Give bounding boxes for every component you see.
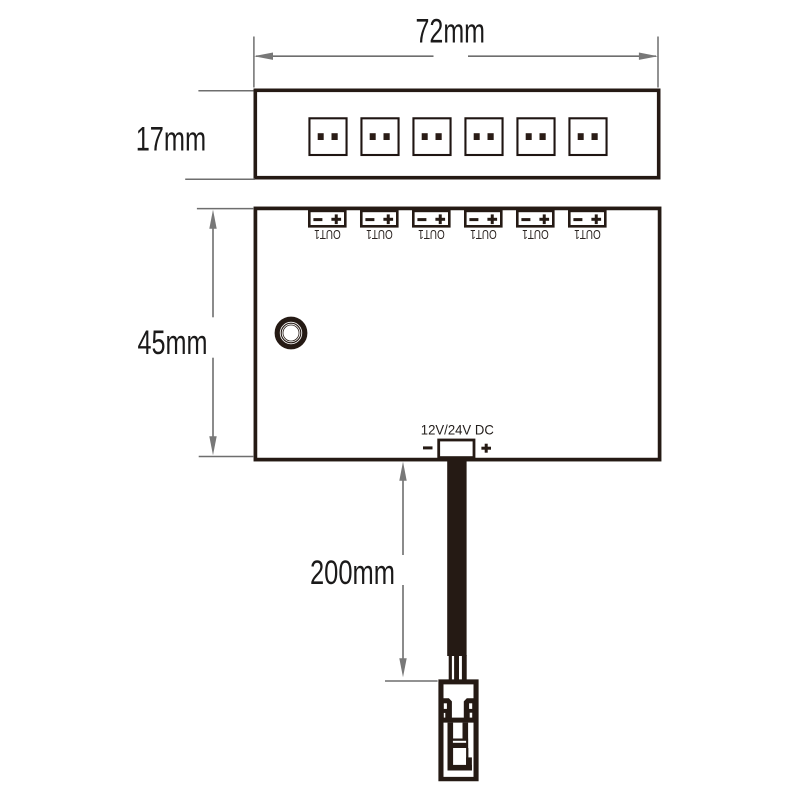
svg-text:45mm: 45mm — [138, 324, 208, 362]
svg-text:200mm: 200mm — [310, 554, 395, 592]
svg-text:12V/24V DC: 12V/24V DC — [421, 423, 494, 438]
svg-text:17mm: 17mm — [136, 121, 207, 159]
svg-text:72mm: 72mm — [416, 13, 486, 51]
